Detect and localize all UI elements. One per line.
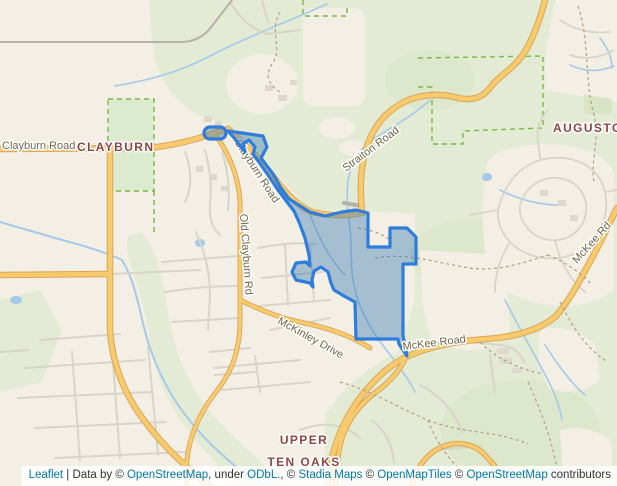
label-clayburn-road: Clayburn Road (2, 140, 75, 152)
attribution-text: , © (280, 469, 298, 481)
map-window: Clayburn Road Clayburn Road CLAYBURN Str… (0, 0, 617, 486)
openstreetmap-link-2[interactable]: OpenStreetMap (467, 469, 548, 481)
label-upper-ten-oaks-1: UPPER (280, 433, 328, 447)
attribution-text: , under (208, 469, 247, 481)
map-tiles: Clayburn Road Clayburn Road CLAYBURN Str… (0, 0, 617, 486)
attribution-text: © (362, 469, 377, 481)
label-auguston-place: AUGUSTON (553, 121, 617, 135)
map-canvas[interactable]: Clayburn Road Clayburn Road CLAYBURN Str… (0, 0, 617, 486)
stadia-maps-link[interactable]: Stadia Maps (298, 469, 362, 481)
boundary-polygon-small[interactable] (204, 127, 226, 139)
attribution-text: contributors (548, 469, 611, 481)
attribution-text: © (452, 469, 467, 481)
openstreetmap-link[interactable]: OpenStreetMap (127, 469, 208, 481)
attribution-text: | Data by © (63, 469, 127, 481)
leaflet-link[interactable]: Leaflet (29, 469, 64, 481)
odbl-link[interactable]: ODbL. (247, 469, 280, 481)
attribution-bar: Leaflet | Data by © OpenStreetMap, under… (21, 466, 617, 486)
openmaptiles-link[interactable]: OpenMapTiles (377, 469, 451, 481)
label-clayburn-place: CLAYBURN (77, 140, 154, 154)
